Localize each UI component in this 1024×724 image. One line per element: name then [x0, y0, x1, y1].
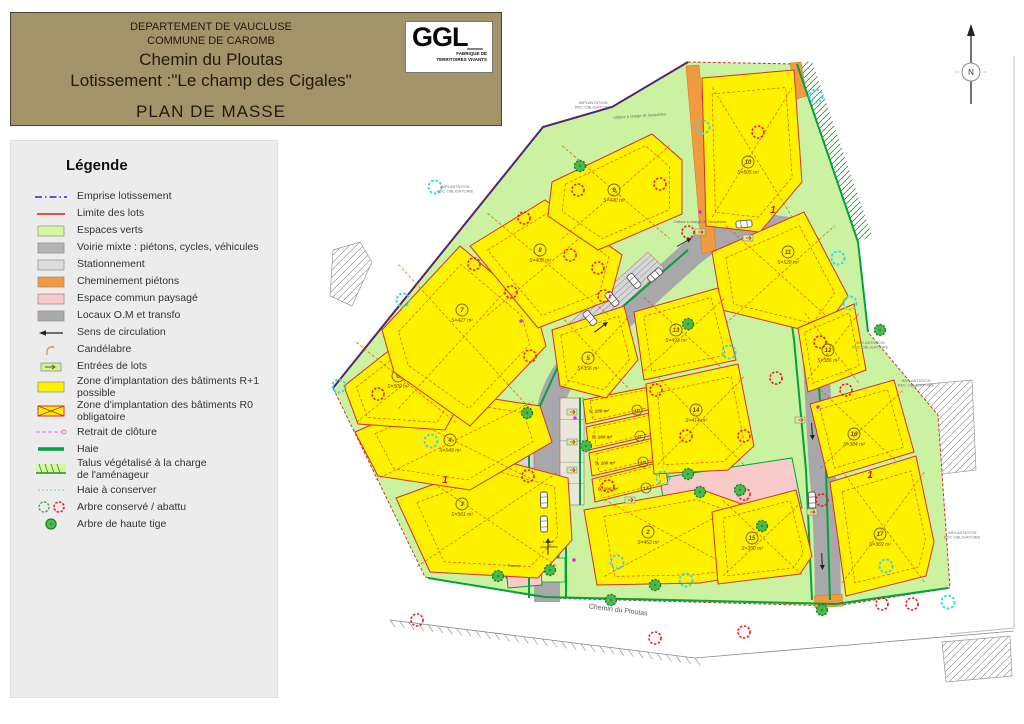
- svg-text:N: N: [968, 68, 974, 77]
- svg-text:1C: 1C: [637, 434, 644, 439]
- svg-text:S=427 m²: S=427 m²: [451, 318, 473, 324]
- legend-swatch-entry-icon: [33, 360, 69, 374]
- svg-text:16: 16: [851, 432, 858, 438]
- legend-label: Limite des lots: [69, 207, 144, 219]
- svg-text:S=369 m²: S=369 m²: [869, 542, 891, 548]
- ggl-logo: GGL_ FABRIQUE DE TERRITOIRES VIVANTS: [405, 21, 493, 73]
- legend-swatch-box-pink-icon: [33, 292, 69, 306]
- svg-text:1D: 1D: [634, 408, 641, 413]
- svg-text:2: 2: [645, 530, 650, 536]
- legend-swatch-box-parking-icon: [33, 258, 69, 272]
- plan-de-masse-sheet: S: 100 m²1AS: 100 m²1BS: 100 m²1CS: 100 …: [0, 0, 1024, 724]
- legend-label: Espace commun paysagé: [69, 292, 198, 304]
- svg-text:Clôture à charge de l'acquéreu: Clôture à charge de l'acquéreur: [673, 220, 727, 224]
- legend-label: Retrait de clôture: [69, 426, 157, 438]
- legend-item-9: Sens de circulation: [33, 324, 277, 341]
- svg-text:S=549 m²: S=549 m²: [439, 448, 461, 454]
- svg-text:S: 100 m²: S: 100 m²: [592, 435, 613, 440]
- legend-item-12: Zone d'implantation des bâtiments R+1 po…: [33, 375, 277, 399]
- svg-text:S=414 m²: S=414 m²: [685, 418, 707, 424]
- legend-swatch-box-gray-icon: [33, 309, 69, 323]
- legend-label: Arbre de haute tige: [69, 518, 166, 530]
- legend-swatch-box-orange-icon: [33, 275, 69, 289]
- legend-swatch-box-road-icon: [33, 241, 69, 255]
- svg-text:1: 1: [770, 205, 776, 216]
- legend-label: Zone d'implantation des bâtiments R+1 po…: [69, 375, 277, 399]
- legend-item-1: Emprise lotissement: [33, 188, 277, 205]
- svg-text:1A: 1A: [643, 486, 649, 491]
- svg-text:IMPLANTATIONRDC OBLIGATOIRE: IMPLANTATIONRDC OBLIGATOIRE: [575, 100, 612, 110]
- svg-text:poubelles: poubelles: [540, 544, 557, 549]
- svg-text:S=384 m²: S=384 m²: [843, 442, 865, 448]
- legend-item-13: Zone d'implantation des bâtiments R0 obl…: [33, 399, 277, 423]
- legend-item-2: Limite des lots: [33, 205, 277, 222]
- legend-label: Voirie mixte : piétons, cycles, véhicule…: [69, 241, 259, 253]
- lotissement-line: Lotissement :"Le champ des Cigales": [11, 70, 411, 91]
- title-block: DEPARTEMENT DE VAUCLUSE COMMUNE DE CAROM…: [10, 12, 502, 126]
- department-line: DEPARTEMENT DE VAUCLUSE: [11, 21, 411, 35]
- roadside-ditch: [390, 620, 1014, 665]
- svg-text:1: 1: [867, 470, 873, 481]
- legend-label: Entrées de lots: [69, 360, 147, 372]
- ggl-logo-text: GGL_: [412, 24, 492, 51]
- svg-text:S=561 m²: S=561 m²: [451, 512, 473, 518]
- legend-item-4: Voirie mixte : piétons, cycles, véhicule…: [33, 239, 277, 256]
- svg-text:S=350 m²: S=350 m²: [741, 546, 763, 552]
- svg-text:S=528 m²: S=528 m²: [777, 260, 799, 266]
- legend-label: Locaux O.M et transfo: [69, 309, 180, 321]
- svg-text:1: 1: [442, 475, 448, 486]
- svg-text:14: 14: [693, 408, 700, 414]
- svg-text:Chemin du Ploutas: Chemin du Ploutas: [588, 603, 648, 617]
- svg-text:S=440 m²: S=440 m²: [603, 198, 625, 204]
- svg-text:13: 13: [673, 328, 680, 334]
- legend-swatch-haie-icon: [33, 442, 69, 456]
- svg-text:S=505 m²: S=505 m²: [737, 170, 759, 176]
- legend-item-7: Espace commun paysagé: [33, 290, 277, 307]
- legend-swatch-haie2-icon: [33, 483, 69, 497]
- svg-text:IMPLANTATIONRDC OBLIGATOIRE: IMPLANTATIONRDC OBLIGATOIRE: [944, 530, 981, 540]
- legend-swatch-tree-icon: [33, 517, 69, 531]
- legend-label: Emprise lotissement: [69, 190, 172, 202]
- legend-label: Espaces verts: [69, 224, 143, 236]
- svg-text:17: 17: [877, 532, 884, 538]
- lot-14: 14S=414 m²: [646, 364, 754, 474]
- svg-text:10: 10: [745, 160, 752, 166]
- lot-15: 15S=350 m²: [712, 490, 812, 584]
- svg-text:S: 100 m²: S: 100 m²: [595, 461, 616, 466]
- svg-text:Transfo: Transfo: [507, 563, 521, 568]
- legend-rows: Emprise lotissementLimite des lotsEspace…: [11, 188, 277, 532]
- legend-swatch-arrow-icon: [33, 326, 69, 340]
- legend-label: Candélabre: [69, 343, 131, 355]
- street-line: Chemin du Ploutas: [11, 49, 411, 70]
- legend-item-10: Candélabre: [33, 341, 277, 358]
- legend-swatch-box-r0-icon: [33, 404, 69, 418]
- legend-item-6: Cheminement piétons: [33, 273, 277, 290]
- svg-text:12: 12: [825, 348, 832, 354]
- legend-label: Haie à conserver: [69, 484, 156, 496]
- lot-17: 17S=369 m²: [830, 456, 934, 596]
- legend-swatch-retrait-icon: [33, 425, 69, 439]
- svg-text:11: 11: [785, 250, 792, 256]
- legend-item-8: Locaux O.M et transfo: [33, 307, 277, 324]
- svg-text:S: 100 m²: S: 100 m²: [589, 409, 610, 414]
- legend-label: Stationnement: [69, 258, 145, 270]
- svg-text:S=386 m²: S=386 m²: [817, 358, 839, 364]
- svg-text:S=509 m²: S=509 m²: [387, 384, 409, 390]
- svg-text:S: 100 m²: S: 100 m²: [598, 487, 619, 492]
- legend-swatch-box-green-icon: [33, 224, 69, 238]
- svg-text:15: 15: [749, 536, 756, 542]
- legend-item-17: Haie à conserver: [33, 481, 277, 498]
- legend-label: Haie: [69, 443, 99, 455]
- north-arrow-icon: N: [955, 24, 987, 104]
- legend-label: Talus végétalisé à la chargede l'aménage…: [69, 457, 207, 481]
- road-name-label: Chemin du Ploutas: [588, 603, 648, 617]
- legend-swatch-emprise-icon: [33, 190, 69, 204]
- svg-text:IMPLANTATIONRDC OBLIGATOIRE: IMPLANTATIONRDC OBLIGATOIRE: [898, 378, 935, 388]
- svg-text:IMPLANTATIONRDC OBLIGATOIRE: IMPLANTATIONRDC OBLIGATOIRE: [852, 340, 889, 350]
- svg-text:S=356 m²: S=356 m²: [577, 366, 599, 372]
- legend-item-19: Arbre de haute tige: [33, 515, 277, 532]
- svg-text:S=400 m²: S=400 m²: [529, 258, 551, 264]
- legend-item-3: Espaces verts: [33, 222, 277, 239]
- legend-swatch-lamp-icon: [33, 343, 69, 357]
- legend-swatch-limite-icon: [33, 207, 69, 221]
- svg-text:S=493 m²: S=493 m²: [665, 338, 687, 344]
- legend-item-16: Talus végétalisé à la chargede l'aménage…: [33, 457, 277, 481]
- svg-text:S=452 m²: S=452 m²: [637, 540, 659, 546]
- legend-item-5: Stationnement: [33, 256, 277, 273]
- commune-line: COMMUNE DE CAROMB: [11, 35, 411, 49]
- svg-text:IMPLANTATIONRDC OBLIGATOIRE: IMPLANTATIONRDC OBLIGATOIRE: [437, 184, 474, 194]
- legend-swatch-box-r1-icon: [33, 380, 69, 394]
- legend-label: Cheminement piétons: [69, 275, 179, 287]
- legend-item-18: Arbre conservé / abattu: [33, 498, 277, 515]
- legend-swatch-talus-icon: [33, 462, 69, 476]
- ggl-tagline-2: TERRITOIRES VIVANTS: [406, 57, 487, 63]
- legend-swatch-trees2-icon: [33, 500, 69, 514]
- legend-item-11: Entrées de lots: [33, 358, 277, 375]
- legend-panel: Légende Emprise lotissementLimite des lo…: [10, 140, 278, 698]
- legend-item-14: Retrait de clôture: [33, 423, 277, 440]
- legend-label: Sens de circulation: [69, 326, 166, 338]
- title-text: DEPARTEMENT DE VAUCLUSE COMMUNE DE CAROM…: [11, 21, 411, 122]
- legend-item-15: Haie: [33, 440, 277, 457]
- legend-title: Légende: [66, 157, 277, 174]
- svg-text:4: 4: [447, 438, 452, 444]
- paper-edge-lines: [950, 56, 1014, 634]
- legend-label: Arbre conservé / abattu: [69, 501, 186, 513]
- svg-text:1B: 1B: [640, 460, 647, 465]
- legend-label: Zone d'implantation des bâtiments R0 obl…: [69, 399, 277, 423]
- page-title: PLAN DE MASSE: [11, 101, 411, 122]
